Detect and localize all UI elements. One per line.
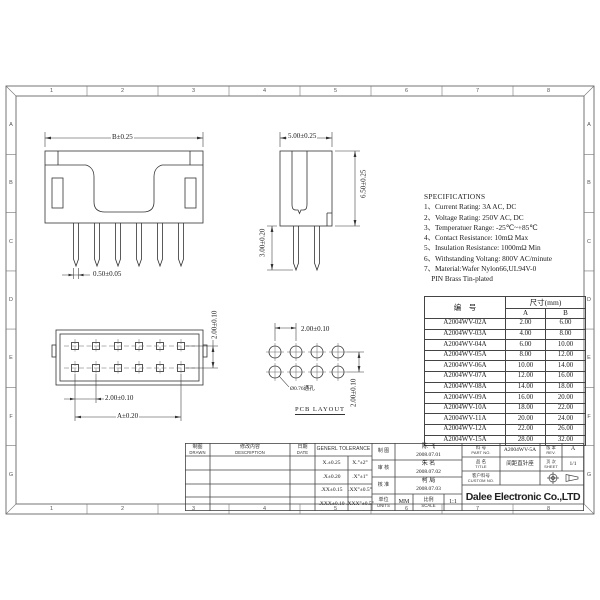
specifications-block: SPECIFICATIONS 1、Current Rating: 3A AC, … xyxy=(424,192,588,285)
signoff-approved-name: 柯 局 xyxy=(422,478,436,486)
date-label-en: DATE xyxy=(297,450,308,455)
table-row: A2004WV-12A22.0026.00 xyxy=(425,424,586,435)
rev-value: A xyxy=(571,446,575,454)
zone-number: 1 xyxy=(16,86,87,96)
zone-number: 4 xyxy=(229,86,300,96)
table-cell: 10.00 xyxy=(506,361,546,372)
description-label-en: DESCRIPTION xyxy=(235,450,265,455)
table-cell: 18.00 xyxy=(546,382,586,393)
table-cell: 2.00 xyxy=(506,319,546,330)
units-value: MM xyxy=(399,499,410,507)
pcb-hole-note: Ø0.76通孔 xyxy=(290,384,315,392)
dim-pcb-col-pitch: 2.00±0.10 xyxy=(300,326,330,334)
table-cell: 16.00 xyxy=(546,371,586,382)
zone-number: 5 xyxy=(300,86,371,96)
signoff-checked-name: 朱 名 xyxy=(422,461,436,469)
tolerance-angular-1: X.°±2° xyxy=(352,460,368,467)
signoff-drawn-date: 2008.07.01 xyxy=(416,452,441,459)
dim-top-row-pitch: 2.00±0.10 xyxy=(211,310,219,340)
tolerance-header: GENERL TOLERANCE xyxy=(315,443,372,456)
table-cell: 6.00 xyxy=(506,340,546,351)
col-header-size: 尺寸(mm) xyxy=(506,297,586,309)
signoff-approved: 柯 局 2008.07.03 xyxy=(395,477,462,494)
zone-number: 1 xyxy=(16,504,87,514)
dim-side-width: 5.00±0.25 xyxy=(287,133,317,141)
spec-line: 4、Contact Resistance: 10mΩ Max xyxy=(424,233,588,243)
table-cell: 18.00 xyxy=(506,403,546,414)
scale-label-en: SCALE xyxy=(421,503,435,508)
drawn-label-en: DRAWN xyxy=(189,450,205,455)
col-header-a: A xyxy=(506,309,546,319)
zone-letter: F xyxy=(6,387,16,445)
table-cell: 22.00 xyxy=(546,403,586,414)
table-row: A2004WV-04A6.0010.00 xyxy=(425,340,586,351)
table-cell: 20.00 xyxy=(506,414,546,425)
table-cell: A2004WV-03A xyxy=(425,329,506,340)
col-header-b: B xyxy=(546,309,586,319)
signoff-checked: 朱 名 2008.07.02 xyxy=(395,460,462,477)
rev-label-en: REV. xyxy=(546,450,555,455)
spec-line: 1、Current Rating: 3A AC, DC xyxy=(424,202,588,212)
spec-line: 2、Voltage Rating: 250V AC, DC xyxy=(424,213,588,223)
specifications-list: 1、Current Rating: 3A AC, DC2、Voltage Rat… xyxy=(424,202,588,284)
table-row: A2004WV-08A14.0018.00 xyxy=(425,382,586,393)
title-label-en: TITLE xyxy=(475,464,486,469)
table-cell: 6.00 xyxy=(546,319,586,330)
table-cell: A2004WV-12A xyxy=(425,424,506,435)
tolerance-linear-2: .X±0.20 xyxy=(323,474,341,481)
zone-number: 2 xyxy=(87,86,158,96)
table-cell: 8.00 xyxy=(546,329,586,340)
spec-line: 6、Withstanding Voltang: 800V AC/minute xyxy=(424,254,588,264)
custom-no-label-en: CUSTOM NO. xyxy=(468,478,494,483)
front-view-drawing xyxy=(42,118,247,283)
company-name: Dalee Electronic Co.,LTD xyxy=(466,491,580,504)
table-cell: A2004WV-05A xyxy=(425,350,506,361)
sheet-value: 1/1 xyxy=(569,461,576,468)
table-cell: 4.00 xyxy=(506,329,546,340)
signoff-checked-date: 2008.07.02 xyxy=(416,469,441,476)
table-row: A2004WV-09A16.0020.00 xyxy=(425,393,586,404)
zone-letter: G xyxy=(584,446,594,504)
table-cell: 16.00 xyxy=(506,393,546,404)
signoff-approved-date: 2008.07.03 xyxy=(416,486,441,493)
spec-line: 7、Material:Wafer Nylon66,UL94V-0 xyxy=(424,264,588,274)
signoff-drawn-name: 陈 飞 xyxy=(422,444,436,452)
units-label-en: UNITS xyxy=(377,503,390,508)
tolerance-angular-4: .XXX°±0.5° xyxy=(346,501,374,508)
table-cell: 10.00 xyxy=(546,340,586,351)
custom-no-header: 客户料号 CUSTOM NO. xyxy=(462,471,500,485)
description-header: 修改内容 DESCRIPTION xyxy=(210,443,290,456)
table-row: A2004WV-05A8.0012.00 xyxy=(425,350,586,361)
signoff-drawn: 陈 飞 2008.07.01 xyxy=(395,443,462,460)
dim-front-pin-width: 0.50±0.05 xyxy=(92,271,122,279)
drawn-header: 制图 DRAWN xyxy=(185,443,210,456)
dim-side-height: 6.50±0.25 xyxy=(360,169,368,199)
specifications-title: SPECIFICATIONS xyxy=(424,192,588,202)
tolerance-linear-1: X.±0.25 xyxy=(323,460,341,467)
tolerance-linear-4: .XXX±0.10 xyxy=(319,501,345,508)
tolerance-header-label: GENERL TOLERANCE xyxy=(317,446,371,452)
tolerance-linear-3: .XX±0.15 xyxy=(321,487,343,494)
sign-approved-label: 核 准 xyxy=(378,482,389,488)
title-value: 间距直针座 xyxy=(506,461,534,468)
units-header: 单位 UNITS xyxy=(372,494,395,511)
spec-line: PIN Brass Tin-plated xyxy=(424,274,588,284)
table-cell: 14.00 xyxy=(546,361,586,372)
table-cell: A2004WV-10A xyxy=(425,403,506,414)
sign-checked-label: 审 核 xyxy=(378,465,389,471)
table-row: A2004WV-07A12.0016.00 xyxy=(425,371,586,382)
dim-front-width: B±0.25 xyxy=(111,134,134,142)
projection-symbol xyxy=(547,472,578,484)
tolerance-angular-3: .XX°±0.5° xyxy=(348,487,372,494)
table-cell: 12.00 xyxy=(506,371,546,382)
table-cell: A2004WV-02A xyxy=(425,319,506,330)
table-row: A2004WV-02A2.006.00 xyxy=(425,319,586,330)
side-view-drawing xyxy=(262,118,387,293)
zone-letter: G xyxy=(6,446,16,504)
scale-header: 比例 SCALE xyxy=(413,494,444,511)
dim-side-pin-length: 3.00±0.20 xyxy=(259,228,267,258)
pcb-layout-caption: PCB LAYOUT xyxy=(295,406,345,415)
date-header: 日期 DATE xyxy=(290,443,315,456)
title-header: 品 名 TITLE xyxy=(462,457,500,471)
dim-pcb-row-pitch: 2.00±0.10 xyxy=(350,378,358,408)
table-cell: 8.00 xyxy=(506,350,546,361)
table-cell: A2004WV-08A xyxy=(425,382,506,393)
zone-number: 6 xyxy=(371,86,442,96)
sheet-label-en: SHEET xyxy=(544,464,558,469)
engineering-drawing-page: { "sheet": { "zone_numbers": ["1","2","3… xyxy=(0,0,600,600)
table-cell: 24.00 xyxy=(546,414,586,425)
zone-letter: A xyxy=(6,96,16,154)
zone-number: 8 xyxy=(513,86,584,96)
sheet-header: 页 次 SHEET xyxy=(540,457,562,471)
table-cell: A2004WV-11A xyxy=(425,414,506,425)
col-header-part-number: 编 号 xyxy=(425,297,506,319)
spec-line: 5、Insulation Resistance: 1000mΩ Min xyxy=(424,243,588,253)
table-row: A2004WV-10A18.0022.00 xyxy=(425,403,586,414)
table-cell: 20.00 xyxy=(546,393,586,404)
scale-value: 1:1 xyxy=(449,499,457,507)
zone-letter: B xyxy=(6,154,16,212)
parts-table: 编 号 尺寸(mm) A B A2004WV-02A2.006.00A2004W… xyxy=(424,296,586,446)
sign-drawn-label: 制 图 xyxy=(378,448,389,454)
table-row: A2004WV-11A20.0024.00 xyxy=(425,414,586,425)
part-no-value: A2004WV-5A xyxy=(504,447,536,454)
zone-number: 2 xyxy=(87,504,158,514)
table-cell: 14.00 xyxy=(506,382,546,393)
spec-line: 3、Temperatuer Range: -25℃~+85℃ xyxy=(424,223,588,233)
tolerance-angular-2: .X°±1° xyxy=(352,474,368,481)
table-cell: A2004WV-06A xyxy=(425,361,506,372)
zone-letter: E xyxy=(6,329,16,387)
zone-number: 7 xyxy=(442,86,513,96)
part-no-header: 料 号 PART NO. xyxy=(462,443,500,457)
zone-number: 3 xyxy=(158,86,229,96)
zone-letter: C xyxy=(6,213,16,271)
zone-col-left: ABCDEFG xyxy=(6,96,16,504)
table-cell: A2004WV-07A xyxy=(425,371,506,382)
zone-row-top: 12345678 xyxy=(16,86,584,96)
table-row: A2004WV-06A10.0014.00 xyxy=(425,361,586,372)
table-row: A2004WV-03A4.008.00 xyxy=(425,329,586,340)
dim-top-span: A±0.20 xyxy=(116,413,139,421)
dim-top-col-pitch: 2.00±0.10 xyxy=(104,395,134,403)
part-no-label-en: PART NO. xyxy=(471,450,490,455)
title-block: 制图 DRAWN 修改内容 DESCRIPTION 日期 DATE GENERL… xyxy=(185,443,584,511)
table-cell: A2004WV-04A xyxy=(425,340,506,351)
table-cell: A2004WV-09A xyxy=(425,393,506,404)
table-cell: 22.00 xyxy=(506,424,546,435)
table-cell: 12.00 xyxy=(546,350,586,361)
table-cell: 26.00 xyxy=(546,424,586,435)
zone-letter: A xyxy=(584,96,594,154)
rev-header: 版 本 REV. xyxy=(540,443,562,457)
zone-letter: D xyxy=(6,271,16,329)
